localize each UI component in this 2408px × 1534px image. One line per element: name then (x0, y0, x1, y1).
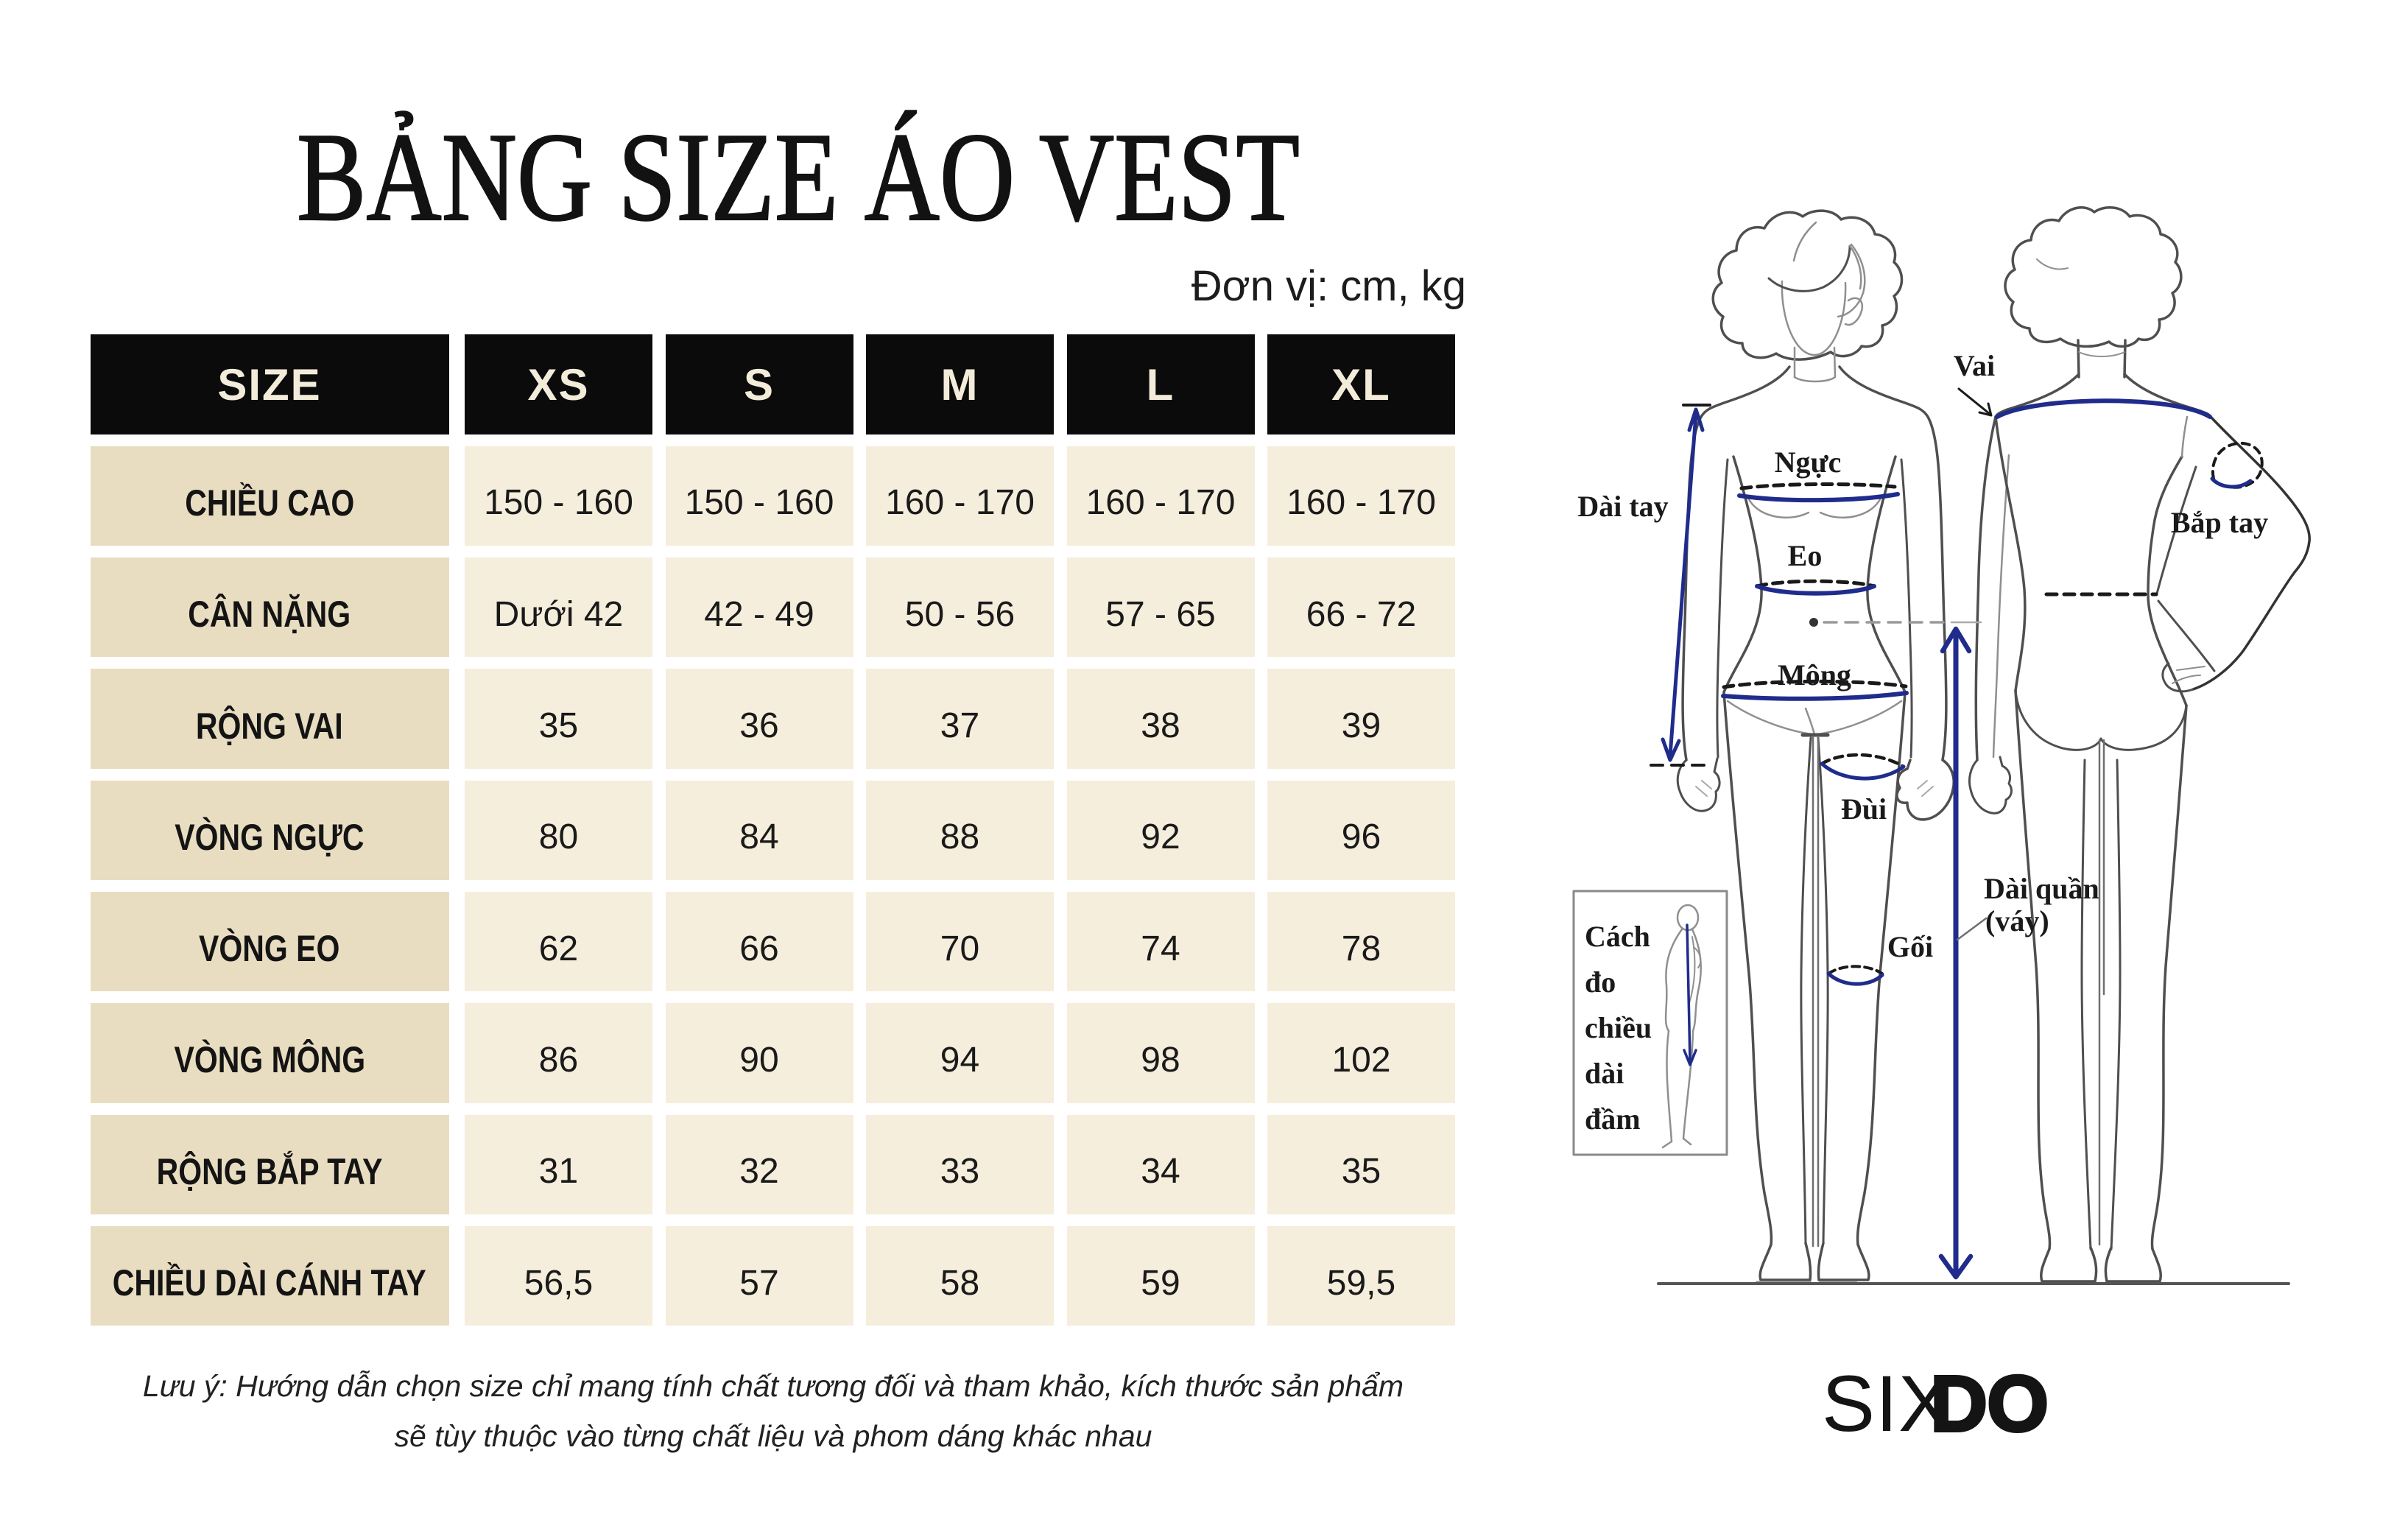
svg-text:Vai: Vai (1954, 349, 1995, 382)
svg-text:đo: đo (1585, 965, 1616, 999)
svg-text:Đùi: Đùi (1841, 792, 1887, 826)
svg-text:Dài quần: Dài quần (1984, 872, 2099, 905)
svg-text:(váy): (váy) (1985, 904, 2049, 937)
svg-text:Eo: Eo (1788, 539, 1823, 572)
svg-text:dài: dài (1585, 1057, 1624, 1090)
svg-text:Ngực: Ngực (1775, 446, 1842, 479)
svg-text:Mông: Mông (1778, 658, 1851, 692)
svg-text:đầm: đầm (1585, 1102, 1641, 1136)
svg-text:Cách: Cách (1585, 920, 1650, 953)
svg-text:Bắp tay: Bắp tay (2171, 506, 2268, 539)
svg-text:chiều: chiều (1585, 1011, 1652, 1044)
svg-text:Dài tay: Dài tay (1577, 490, 1668, 523)
svg-text:Gối: Gối (1887, 930, 1933, 963)
